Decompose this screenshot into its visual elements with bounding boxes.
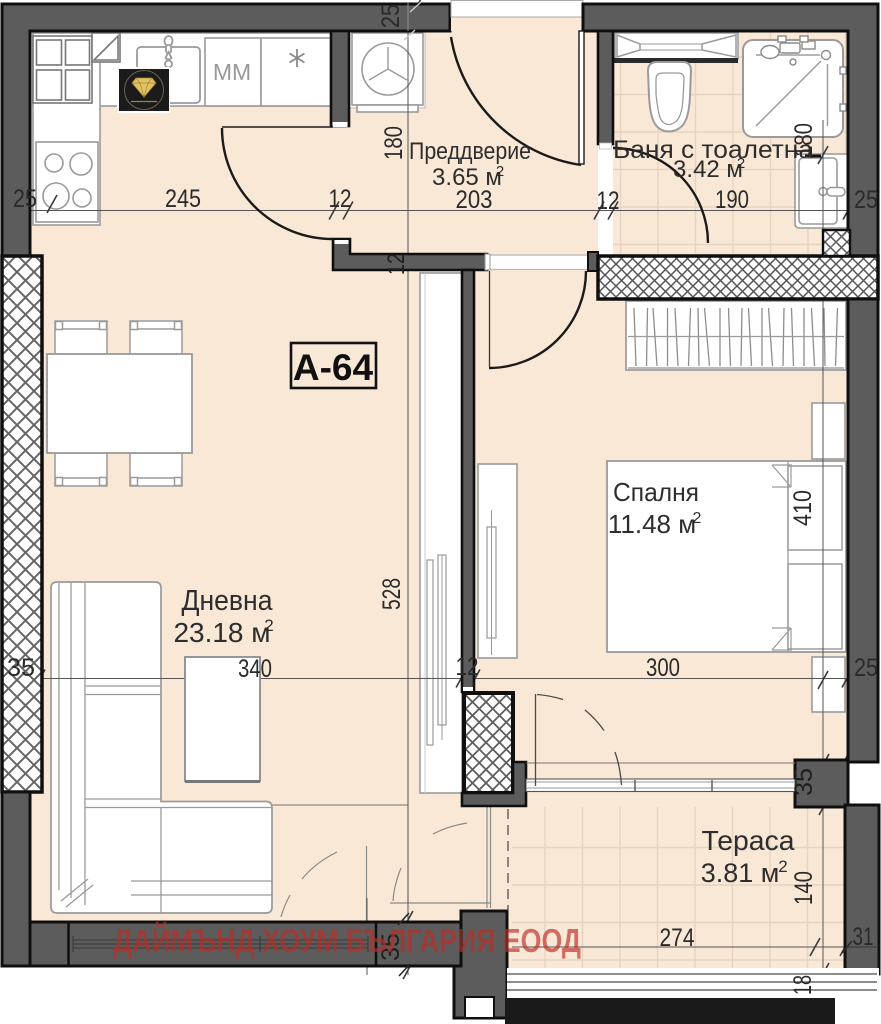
svg-text:2: 2: [737, 155, 745, 172]
svg-text:245: 245: [165, 185, 201, 213]
svg-text:ДАЙМЪНД ХОУМ БЪЛГАРИЯ ЕООД: ДАЙМЪНД ХОУМ БЪЛГАРИЯ ЕООД: [113, 921, 581, 959]
svg-text:528: 528: [378, 578, 406, 610]
svg-text:190: 190: [715, 186, 749, 214]
svg-text:340: 340: [238, 655, 272, 683]
svg-text:11.48 м: 11.48 м: [608, 509, 696, 539]
svg-text:18: 18: [789, 975, 817, 995]
svg-text:12: 12: [329, 185, 352, 213]
svg-text:3.42 м: 3.42 м: [673, 156, 743, 183]
svg-text:35: 35: [790, 768, 818, 796]
svg-text:2: 2: [264, 616, 273, 635]
svg-text:2: 2: [778, 857, 787, 876]
svg-text:25: 25: [13, 185, 37, 213]
svg-text:25: 25: [854, 186, 878, 214]
svg-text:2: 2: [693, 510, 702, 527]
svg-text:Преддверие: Преддверие: [409, 138, 531, 165]
svg-text:180: 180: [790, 123, 818, 157]
svg-text:Дневна: Дневна: [182, 585, 274, 617]
svg-text:12: 12: [597, 187, 620, 215]
svg-text:31: 31: [853, 923, 874, 951]
svg-text:35: 35: [7, 654, 35, 682]
svg-text:203: 203: [456, 186, 493, 214]
svg-text:180: 180: [380, 126, 408, 160]
svg-text:300: 300: [646, 654, 680, 682]
svg-text:ММ: ММ: [213, 59, 251, 85]
svg-text:274: 274: [660, 924, 695, 952]
svg-text:2: 2: [496, 163, 504, 180]
svg-text:25: 25: [377, 4, 405, 28]
svg-text:140: 140: [790, 871, 818, 905]
svg-text:410: 410: [789, 490, 817, 526]
svg-text:Спалня: Спалня: [613, 477, 699, 507]
svg-text:12: 12: [456, 653, 479, 681]
svg-text:23.18 м: 23.18 м: [173, 617, 270, 648]
svg-text:12: 12: [383, 253, 410, 275]
svg-text:3.81 м: 3.81 м: [701, 858, 780, 888]
svg-text:Тераса: Тераса: [702, 825, 795, 856]
svg-text:25: 25: [854, 654, 878, 682]
svg-text:A-64: A-64: [293, 347, 374, 388]
